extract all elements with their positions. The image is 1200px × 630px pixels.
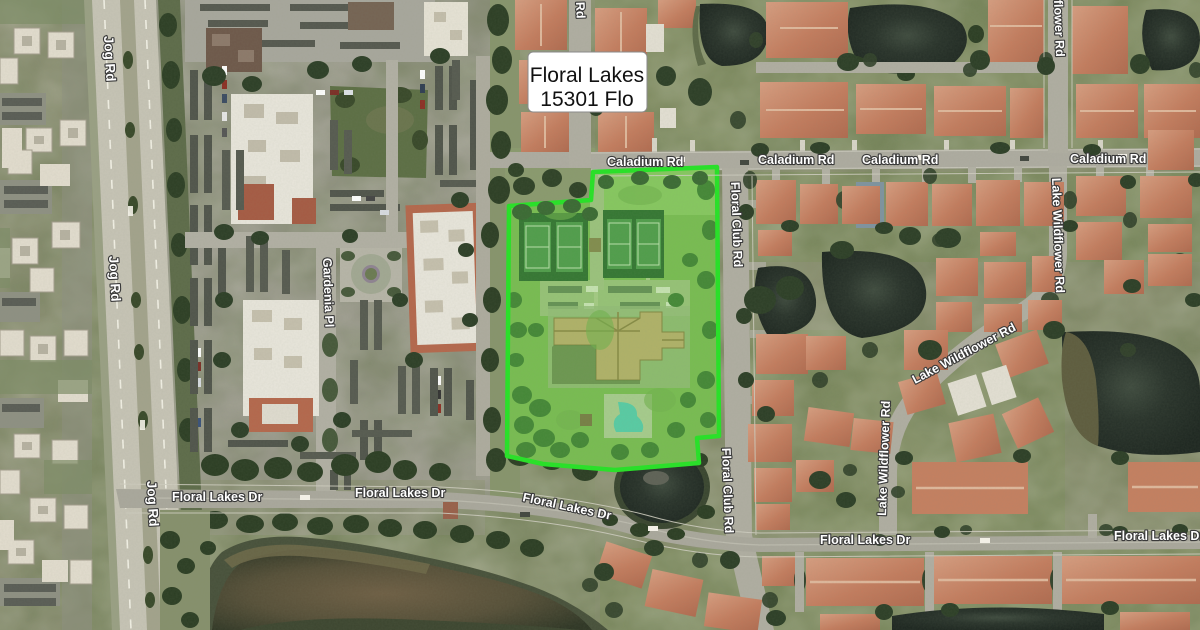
svg-text:Rd: Rd: [573, 2, 588, 19]
svg-text:Floral Lakes Dr: Floral Lakes Dr: [820, 533, 910, 547]
svg-text:Jog Rd: Jog Rd: [106, 255, 123, 301]
svg-text:Floral Club Rd: Floral Club Rd: [719, 448, 736, 534]
svg-text:15301 Flo: 15301 Flo: [540, 88, 633, 111]
svg-text:Floral Club Rd: Floral Club Rd: [728, 182, 745, 268]
svg-text:Gardenia Pl: Gardenia Pl: [320, 258, 336, 328]
svg-text:flower Rd: flower Rd: [1051, 0, 1067, 57]
svg-text:Caladium Rd: Caladium Rd: [862, 153, 938, 167]
svg-text:Floral Lakes: Floral Lakes: [530, 64, 644, 87]
svg-text:Caladium Rd: Caladium Rd: [607, 155, 683, 169]
svg-text:Caladium Rd: Caladium Rd: [1070, 152, 1146, 166]
svg-text:Floral Lakes Dr: Floral Lakes Dr: [355, 486, 445, 500]
svg-text:Caladium Rd: Caladium Rd: [758, 153, 834, 167]
svg-text:Jog Rd: Jog Rd: [101, 35, 118, 81]
svg-text:Jog Rd: Jog Rd: [144, 480, 161, 526]
svg-text:Floral Lakes Dr: Floral Lakes Dr: [1114, 529, 1200, 543]
svg-text:Floral Lakes Dr: Floral Lakes Dr: [172, 490, 262, 504]
